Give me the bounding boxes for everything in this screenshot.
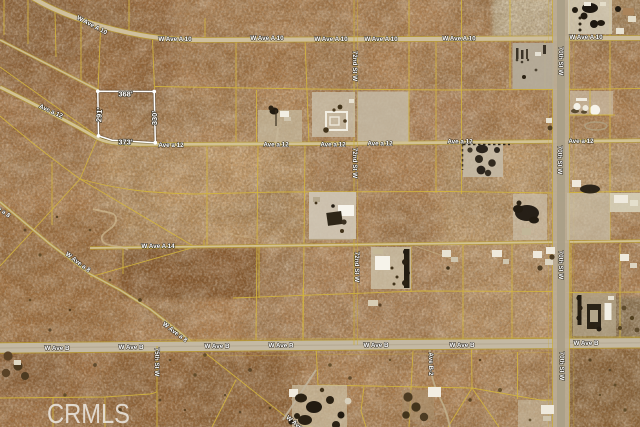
svg-text:70th St W: 70th St W [557, 47, 564, 76]
svg-text:Ave B-2: Ave B-2 [427, 352, 434, 376]
svg-text:W Ave B: W Ave B [118, 344, 144, 351]
svg-text:W Ave A 14: W Ave A 14 [141, 243, 175, 250]
svg-text:70th St W: 70th St W [558, 352, 565, 381]
svg-text:Ave a 12: Ave a 12 [447, 139, 473, 146]
svg-text:W Ave A 10: W Ave A 10 [250, 35, 284, 42]
svg-text:W Ave A 10: W Ave A 10 [442, 36, 476, 43]
svg-text:70th St W: 70th St W [556, 146, 563, 175]
svg-text:Ave a 12: Ave a 12 [263, 142, 289, 149]
svg-text:W Ave A 10: W Ave A 10 [364, 36, 398, 43]
svg-text:75th St W: 75th St W [153, 348, 160, 377]
svg-text:W Ave B: W Ave B [449, 342, 475, 349]
svg-text:70th St W: 70th St W [557, 251, 564, 280]
svg-text:Ave a 12: Ave a 12 [158, 142, 184, 149]
svg-text:Ave a 12: Ave a 12 [568, 138, 594, 145]
svg-text:W Ave A 10: W Ave A 10 [314, 36, 348, 43]
svg-text:W Ave B: W Ave B [268, 343, 294, 350]
svg-text:W Ave B: W Ave B [363, 342, 389, 349]
svg-text:W Ave B: W Ave B [204, 343, 230, 350]
svg-text:72nd St W: 72nd St W [351, 51, 358, 81]
svg-text:330': 330' [150, 111, 159, 126]
svg-text:291': 291' [94, 107, 104, 122]
svg-text:373': 373' [118, 138, 133, 147]
svg-text:W Ave A 10: W Ave A 10 [158, 36, 192, 43]
svg-text:72nd St W: 72nd St W [351, 148, 358, 178]
svg-text:368': 368' [118, 90, 133, 99]
svg-text:W Ave A 10: W Ave A 10 [569, 34, 603, 41]
svg-text:W Ave B: W Ave B [44, 345, 70, 352]
svg-text:72nd St W: 72nd St W [353, 252, 360, 282]
svg-text:CRMLS: CRMLS [47, 398, 130, 427]
svg-text:Ave a 12: Ave a 12 [320, 142, 346, 149]
svg-text:W Ave B: W Ave B [573, 340, 599, 347]
svg-text:Ave a 12: Ave a 12 [367, 141, 393, 148]
